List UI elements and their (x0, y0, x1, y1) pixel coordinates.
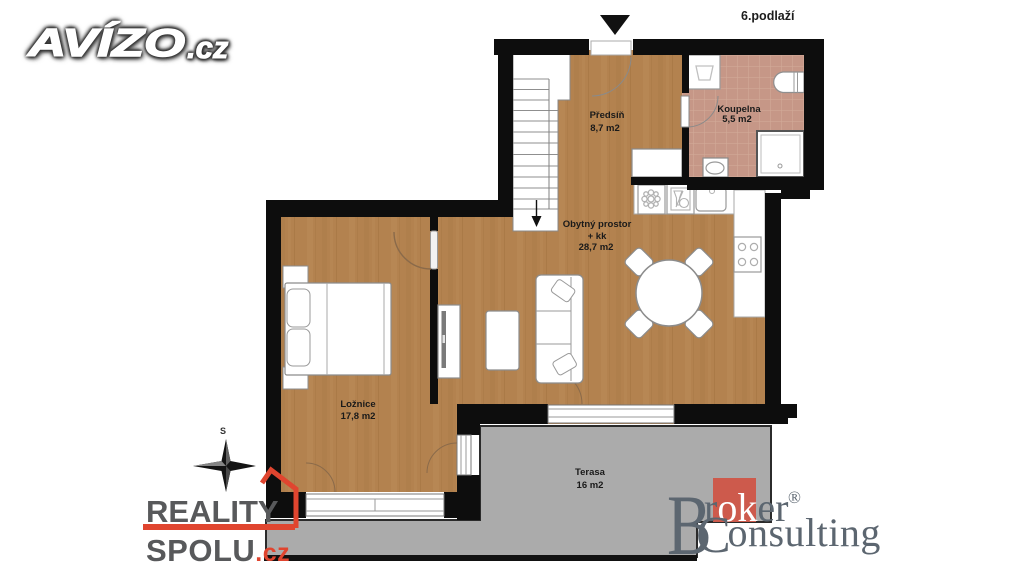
svg-text:S: S (220, 426, 226, 436)
svg-text:28,7 m2: 28,7 m2 (579, 242, 614, 253)
svg-text:Terasa: Terasa (575, 467, 606, 478)
svg-text:Předsíň: Předsíň (590, 110, 625, 121)
svg-text:Ložnice: Ložnice (340, 399, 375, 410)
svg-text:5,5 m2: 5,5 m2 (722, 114, 752, 125)
svg-text:16 m2: 16 m2 (577, 480, 604, 491)
svg-text:17,8 m2: 17,8 m2 (341, 411, 376, 422)
svg-text:Obytný prostor: Obytný prostor (563, 219, 632, 230)
svg-text:+ kk: + kk (588, 231, 607, 242)
svg-text:8,7 m2: 8,7 m2 (590, 123, 620, 134)
